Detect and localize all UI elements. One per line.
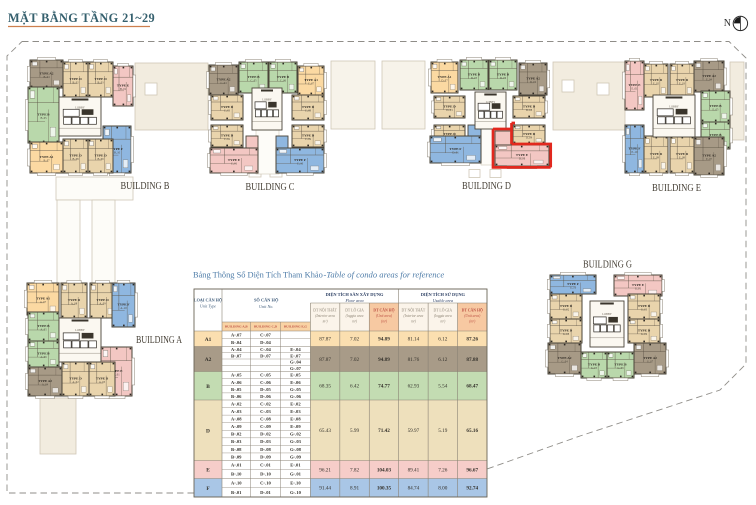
svg-text:m²): m²): [352, 320, 358, 324]
svg-text:7.82: 7.82: [350, 467, 359, 473]
svg-text:TYPE D: TYPE D: [94, 154, 107, 158]
svg-text:A..02: A..02: [72, 381, 79, 384]
svg-text:-Table of condo areas for refe: -Table of condo areas for reference: [324, 270, 445, 280]
svg-text:7.02: 7.02: [350, 357, 359, 363]
svg-text:TYPE D: TYPE D: [221, 105, 234, 109]
svg-text:100.35: 100.35: [377, 486, 392, 492]
svg-text:89.41: 89.41: [408, 467, 420, 473]
svg-text:68.35: 68.35: [319, 384, 331, 390]
svg-text:C..08: C..08: [305, 110, 312, 113]
svg-text:MẶT BẰNG TẦNG 21~29: MẶT BẰNG TẦNG 21~29: [8, 10, 155, 25]
svg-text:TYPE D: TYPE D: [638, 304, 651, 308]
svg-text:A▫.07: A▫.07: [231, 332, 242, 337]
svg-text:DIỆN TÍCH SỬ DỤNG: DIỆN TÍCH SỬ DỤNG: [421, 292, 466, 297]
svg-text:8.91: 8.91: [350, 486, 359, 492]
svg-text:68.47: 68.47: [466, 384, 478, 390]
svg-text:84.74: 84.74: [408, 486, 420, 492]
svg-text:B..10: B..10: [114, 152, 121, 155]
svg-text:74.77: 74.77: [378, 384, 390, 390]
svg-text:C..03: C..03: [224, 110, 231, 113]
svg-text:m²): m²): [323, 320, 329, 324]
svg-text:A..05: A..05: [40, 329, 47, 332]
svg-text:LOBBY: LOBBY: [669, 106, 678, 109]
svg-text:(Unit area): (Unit area): [464, 314, 481, 318]
svg-text:E..04: E..04: [706, 79, 713, 82]
svg-text:TYPE D: TYPE D: [560, 304, 573, 308]
svg-text:BUILDING E,G: BUILDING E,G: [284, 324, 308, 328]
svg-text:104.03: 104.03: [377, 467, 392, 473]
svg-text:TYPE A2: TYPE A2: [558, 356, 572, 360]
svg-text:B▫.09: B▫.09: [231, 454, 242, 459]
svg-text:D: D: [206, 428, 210, 434]
svg-text:B▫.04: B▫.04: [231, 340, 242, 345]
svg-text:G..09: G..09: [641, 333, 648, 336]
svg-text:D▫.06: D▫.06: [260, 394, 271, 399]
svg-text:TYPE D: TYPE D: [94, 77, 107, 81]
svg-text:A▫.05: A▫.05: [231, 373, 242, 378]
svg-text:N: N: [724, 18, 731, 29]
svg-text:E▫.09: E▫.09: [290, 424, 301, 429]
svg-text:(loggia area: (loggia area: [346, 314, 364, 318]
svg-text:D▫.04: D▫.04: [260, 340, 271, 345]
svg-text:LOBBY: LOBBY: [602, 313, 611, 316]
svg-text:G▫.10: G▫.10: [290, 490, 302, 495]
svg-text:A..10: A..10: [120, 307, 127, 310]
svg-text:5.99: 5.99: [350, 428, 359, 434]
svg-text:TYPE D: TYPE D: [650, 78, 663, 82]
svg-text:C▫.09: C▫.09: [260, 424, 271, 429]
svg-text:B..02: B..02: [72, 82, 79, 85]
svg-text:E▫.03: E▫.03: [290, 409, 301, 414]
svg-text:LOBBY: LOBBY: [262, 99, 271, 102]
svg-text:E▫.05: E▫.05: [290, 373, 301, 378]
svg-text:(Unit area): (Unit area): [376, 314, 393, 318]
svg-text:TYPE D: TYPE D: [69, 154, 82, 158]
svg-text:TYPE D: TYPE D: [650, 152, 663, 156]
svg-text:TYPE B: TYPE B: [468, 73, 481, 77]
svg-text:D..07: D..07: [441, 80, 448, 83]
svg-text:TYPE A1: TYPE A1: [40, 155, 54, 159]
svg-text:E..09: E..09: [653, 157, 660, 160]
svg-text:62.93: 62.93: [408, 384, 420, 390]
svg-text:B▫.02: B▫.02: [231, 432, 242, 437]
svg-text:D▫.05: D▫.05: [260, 387, 271, 392]
svg-text:B▫.10: B▫.10: [231, 472, 242, 477]
svg-text:TYPE D: TYPE D: [638, 329, 651, 333]
svg-text:G..04: G..04: [561, 361, 568, 364]
svg-text:A▫.09: A▫.09: [231, 424, 242, 429]
svg-text:TYPE B: TYPE B: [37, 113, 50, 117]
svg-text:C..10: C..10: [297, 163, 304, 166]
svg-text:Usable area: Usable area: [433, 298, 453, 303]
svg-text:D..09: D..09: [526, 137, 533, 140]
svg-text:TYPE F: TYPE F: [118, 303, 130, 307]
svg-text:TYPE D: TYPE D: [523, 105, 536, 109]
svg-text:TYPE A2: TYPE A2: [526, 77, 540, 81]
svg-text:94.89: 94.89: [378, 337, 390, 343]
svg-text:G..01: G..01: [635, 288, 642, 291]
svg-text:C▫.05: C▫.05: [260, 373, 271, 378]
svg-text:BUILDING A: BUILDING A: [136, 335, 183, 346]
svg-text:81.76: 81.76: [408, 357, 420, 363]
svg-text:5.19: 5.19: [438, 428, 447, 434]
svg-text:(Interior area: (Interior area: [404, 314, 424, 318]
svg-text:TYPE D: TYPE D: [221, 134, 234, 138]
svg-text:TYPE B: TYPE B: [709, 104, 722, 108]
svg-text:96.67: 96.67: [466, 467, 478, 473]
svg-text:A▫.03: A▫.03: [231, 409, 242, 414]
svg-text:B▫.06: B▫.06: [231, 394, 242, 399]
svg-text:E▫.04: E▫.04: [290, 347, 301, 352]
svg-text:TYPE D: TYPE D: [676, 152, 689, 156]
svg-text:m²): m²): [440, 320, 446, 324]
svg-text:TYPE A1: TYPE A1: [304, 78, 318, 82]
svg-text:TYPE A1: TYPE A1: [36, 297, 50, 301]
svg-text:E..10: E..10: [632, 151, 639, 154]
svg-text:C..07: C..07: [308, 83, 315, 86]
svg-text:71.42: 71.42: [378, 428, 390, 434]
svg-text:A▫.02: A▫.02: [231, 401, 242, 406]
svg-text:G..10: G..10: [570, 287, 577, 290]
svg-text:E..07: E..07: [706, 158, 713, 161]
svg-text:C▫.01: C▫.01: [260, 463, 271, 468]
svg-text:TYPE F: TYPE F: [567, 282, 579, 286]
svg-text:A▫.04: A▫.04: [231, 347, 242, 352]
svg-text:C..09: C..09: [305, 138, 312, 141]
svg-text:G..08: G..08: [563, 333, 570, 336]
svg-text:81.14: 81.14: [408, 337, 420, 343]
svg-text:DT NỘI THẤT: DT NỘI THẤT: [402, 308, 426, 313]
svg-text:LOẠI CĂN HỘ: LOẠI CĂN HỘ: [194, 298, 223, 303]
svg-text:C▫.06: C▫.06: [260, 380, 271, 385]
svg-text:B..03: B..03: [97, 82, 104, 85]
svg-text:LOBBY: LOBBY: [75, 329, 84, 332]
svg-text:TYPE D: TYPE D: [443, 132, 456, 136]
svg-text:D▫.09: D▫.09: [260, 454, 271, 459]
svg-text:TYPE A2: TYPE A2: [217, 78, 231, 82]
svg-text:G..06: G..06: [617, 367, 624, 370]
svg-text:D..04: D..04: [530, 81, 537, 84]
svg-text:C▫.10: C▫.10: [260, 481, 271, 486]
svg-text:TYPE E: TYPE E: [516, 153, 529, 157]
svg-text:C..05: C..05: [250, 80, 257, 83]
svg-text:(m²): (m²): [469, 320, 476, 324]
svg-text:LOBBY: LOBBY: [75, 107, 84, 110]
svg-text:TYPE B: TYPE B: [277, 75, 290, 79]
svg-text:TYPE D: TYPE D: [68, 298, 81, 302]
svg-text:m²): m²): [411, 320, 417, 324]
svg-text:BUILDING A,B: BUILDING A,B: [225, 324, 249, 328]
svg-text:TYPE D: TYPE D: [96, 377, 109, 381]
svg-text:TYPE D: TYPE D: [523, 132, 536, 136]
svg-text:D..03: D..03: [446, 109, 453, 112]
svg-text:E▫.10: E▫.10: [290, 481, 301, 486]
svg-text:B▫.03: B▫.03: [231, 439, 242, 444]
svg-text:B▫.01: B▫.01: [231, 490, 242, 495]
svg-text:A..09: A..09: [99, 303, 106, 306]
svg-text:B..07: B..07: [43, 160, 50, 163]
svg-text:DT CĂN HỘ: DT CĂN HỘ: [462, 308, 483, 313]
svg-text:A1: A1: [205, 337, 212, 343]
svg-text:65.43: 65.43: [319, 428, 331, 434]
svg-text:TYPE F: TYPE F: [629, 147, 641, 151]
svg-text:E..05: E..05: [713, 109, 720, 112]
svg-text:TYPE A1: TYPE A1: [438, 75, 452, 79]
svg-text:G▫.09: G▫.09: [290, 454, 302, 459]
svg-text:D▫.08: D▫.08: [260, 447, 271, 452]
svg-text:92.74: 92.74: [466, 486, 478, 492]
svg-text:BUILDING G: BUILDING G: [583, 260, 633, 271]
svg-text:96.21: 96.21: [319, 467, 331, 473]
svg-text:C..01: C..01: [231, 163, 238, 166]
svg-text:E▫.07: E▫.07: [290, 353, 301, 358]
svg-text:TYPE D: TYPE D: [302, 105, 315, 109]
svg-text:C..06: C..06: [280, 80, 287, 83]
svg-text:87.87: 87.87: [319, 357, 331, 363]
svg-text:C..04: C..04: [220, 82, 227, 85]
svg-text:C..02: C..02: [224, 138, 231, 141]
svg-text:G▫.02: G▫.02: [290, 432, 302, 437]
svg-text:B..08: B..08: [72, 158, 79, 161]
svg-text:B..05: B..05: [40, 117, 47, 120]
svg-text:DT NỘI THẤT: DT NỘI THẤT: [313, 308, 337, 313]
svg-text:TYPE A2: TYPE A2: [643, 356, 657, 360]
svg-text:TYPE B: TYPE B: [37, 324, 50, 328]
svg-text:LOBBY: LOBBY: [486, 101, 495, 104]
svg-text:E..01: E..01: [632, 88, 639, 91]
svg-text:G▫.06: G▫.06: [290, 394, 302, 399]
svg-text:G▫.07: G▫.07: [290, 366, 302, 371]
svg-text:8.00: 8.00: [438, 486, 447, 492]
svg-text:TYPE B: TYPE B: [247, 75, 260, 79]
svg-text:TYPE A2: TYPE A2: [702, 154, 716, 158]
svg-text:D▫.07: D▫.07: [260, 353, 271, 358]
svg-text:TYPE D: TYPE D: [676, 78, 689, 82]
svg-text:D▫.02: D▫.02: [260, 432, 271, 437]
svg-text:TYPE D: TYPE D: [302, 134, 315, 138]
svg-text:94.89: 94.89: [378, 357, 390, 363]
svg-text:C▫.04: C▫.04: [260, 347, 271, 352]
svg-text:D▫.01: D▫.01: [260, 490, 271, 495]
svg-text:A▫.08: A▫.08: [231, 417, 242, 422]
svg-text:TYPE B: TYPE B: [588, 363, 601, 367]
svg-text:TYPE A2: TYPE A2: [702, 74, 716, 78]
svg-text:G▫.05: G▫.05: [290, 387, 302, 392]
svg-text:87.88: 87.88: [466, 357, 478, 363]
svg-text:A2: A2: [205, 357, 212, 363]
svg-text:A..08: A..08: [71, 303, 78, 306]
svg-text:TYPE D: TYPE D: [443, 105, 456, 109]
svg-text:B..01: B..01: [120, 88, 127, 91]
svg-text:TYPE D: TYPE D: [560, 329, 573, 333]
svg-text:E: E: [206, 468, 210, 474]
svg-text:D..08: D..08: [526, 109, 533, 112]
svg-text:DIỆN TÍCH SÀN XÂY DỰNG: DIỆN TÍCH SÀN XÂY DỰNG: [326, 292, 384, 297]
svg-text:E..08: E..08: [679, 157, 686, 160]
svg-text:E▫.08: E▫.08: [290, 417, 301, 422]
svg-text:TYPE D: TYPE D: [69, 77, 82, 81]
svg-text:A..03: A..03: [99, 381, 106, 384]
svg-text:(loggia area: (loggia area: [434, 314, 452, 318]
svg-text:D..01: D..01: [452, 152, 459, 155]
svg-text:D..06: D..06: [500, 77, 507, 80]
svg-text:E..03: E..03: [679, 83, 686, 86]
svg-text:B▫.05: B▫.05: [231, 387, 242, 392]
svg-text:D..10: D..10: [519, 158, 526, 161]
svg-text:91.44: 91.44: [319, 486, 331, 492]
svg-text:87.87: 87.87: [319, 337, 331, 343]
svg-text:DT LÔ GIA: DT LÔ GIA: [345, 308, 364, 313]
svg-text:G▫.03: G▫.03: [290, 439, 302, 444]
svg-text:BUILDING C,D: BUILDING C,D: [254, 324, 278, 328]
svg-text:6.42: 6.42: [350, 384, 359, 390]
svg-text:G..07: G..07: [647, 361, 654, 364]
svg-text:TYPE E: TYPE E: [632, 283, 645, 287]
svg-text:E..02: E..02: [653, 83, 660, 86]
svg-text:(m²): (m²): [381, 320, 388, 324]
svg-text:TYPE E: TYPE E: [117, 84, 130, 88]
svg-text:E▫.06: E▫.06: [290, 380, 301, 385]
svg-text:G▫.08: G▫.08: [290, 447, 302, 452]
svg-text:Unit Type: Unit Type: [200, 304, 216, 309]
svg-text:(Interior area: (Interior area: [315, 314, 335, 318]
svg-text:TYPE B: TYPE B: [709, 133, 722, 137]
svg-text:BUILDING E: BUILDING E: [652, 183, 701, 194]
svg-text:D▫.03: D▫.03: [260, 439, 271, 444]
svg-text:BUILDING C: BUILDING C: [246, 182, 295, 193]
svg-text:SỐ CĂN HỘ: SỐ CĂN HỘ: [254, 298, 279, 303]
svg-text:TYPE B: TYPE B: [497, 73, 510, 77]
svg-text:TYPE B: TYPE B: [614, 363, 627, 367]
svg-text:TYPE D: TYPE D: [69, 377, 82, 381]
svg-text:G..03: G..03: [641, 309, 648, 312]
svg-text:B..04: B..04: [43, 76, 50, 79]
svg-text:6.12: 6.12: [438, 357, 447, 363]
svg-text:G▫.04: G▫.04: [290, 360, 302, 365]
svg-text:C▫.08: C▫.08: [260, 417, 271, 422]
svg-text:C▫.03: C▫.03: [260, 409, 271, 414]
svg-text:A..07: A..07: [40, 301, 47, 304]
svg-text:G..02: G..02: [563, 309, 570, 312]
svg-text:TYPE E: TYPE E: [228, 158, 241, 162]
svg-text:A..06: A..06: [40, 356, 47, 359]
svg-text:TYPE A2: TYPE A2: [38, 379, 52, 383]
svg-text:C▫.02: C▫.02: [260, 401, 271, 406]
svg-text:Bảng Thông Số Diện Tích Tham K: Bảng Thông Số Diện Tích Tham Khảo: [193, 271, 323, 280]
svg-text:B..09: B..09: [97, 158, 104, 161]
svg-text:A▫.01: A▫.01: [231, 463, 242, 468]
svg-text:E▫.02: E▫.02: [290, 401, 301, 406]
svg-text:DT LÔ GIA: DT LÔ GIA: [433, 308, 452, 313]
svg-text:TYPE D: TYPE D: [96, 298, 109, 302]
svg-text:6.12: 6.12: [438, 337, 447, 343]
svg-text:D..05: D..05: [471, 77, 478, 80]
svg-text:G..05: G..05: [591, 367, 598, 370]
svg-text:E▫.01: E▫.01: [290, 463, 301, 468]
svg-text:B▫.08: B▫.08: [231, 447, 242, 452]
svg-text:TYPE A2: TYPE A2: [40, 72, 54, 76]
svg-text:A▫.06: A▫.06: [231, 380, 242, 385]
svg-text:5.54: 5.54: [438, 384, 447, 390]
svg-text:Floor area: Floor area: [344, 298, 363, 303]
svg-text:B: B: [206, 384, 210, 390]
svg-text:87.26: 87.26: [466, 337, 478, 343]
svg-text:G▫.01: G▫.01: [290, 472, 302, 477]
svg-text:D▫.10: D▫.10: [260, 472, 271, 477]
svg-text:59.97: 59.97: [408, 428, 420, 434]
svg-text:B▫.07: B▫.07: [231, 353, 242, 358]
svg-text:TYPE E: TYPE E: [628, 83, 641, 87]
svg-text:7.02: 7.02: [350, 337, 359, 343]
svg-text:TYPE F: TYPE F: [294, 158, 306, 162]
svg-text:C▫.07: C▫.07: [260, 332, 271, 337]
svg-text:65.16: 65.16: [466, 428, 478, 434]
svg-text:TYPE F: TYPE F: [450, 147, 462, 151]
svg-text:Unit No.: Unit No.: [259, 304, 273, 309]
svg-text:DT CĂN HỘ: DT CĂN HỘ: [373, 308, 394, 313]
svg-text:BUILDING D: BUILDING D: [462, 181, 511, 192]
svg-text:TYPE B: TYPE B: [37, 352, 50, 356]
svg-text:7.26: 7.26: [438, 467, 447, 473]
svg-text:BUILDING B: BUILDING B: [121, 181, 170, 192]
svg-text:A..04: A..04: [42, 384, 49, 387]
svg-text:A▫.10: A▫.10: [231, 481, 242, 486]
